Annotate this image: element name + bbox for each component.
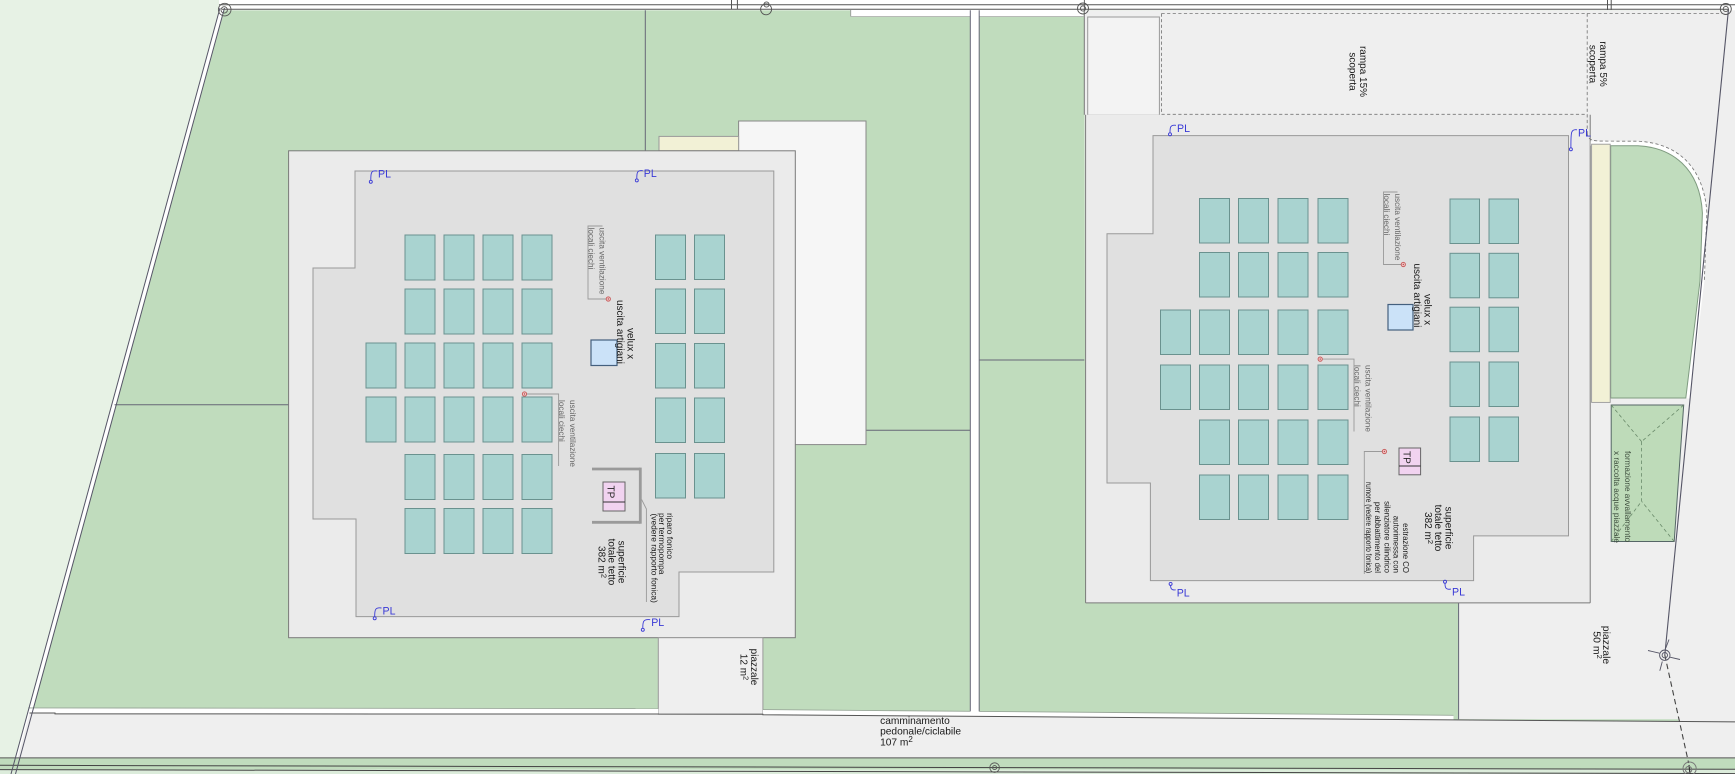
svg-text:PL: PL (378, 169, 391, 181)
svg-text:per abbattimento del: per abbattimento del (1373, 502, 1382, 573)
svg-text:camminamento: camminamento (880, 716, 950, 727)
svg-text:382 m2: 382 m2 (596, 546, 609, 578)
svg-text:PL: PL (651, 617, 664, 629)
svg-text:x raccolta acque piazzale: x raccolta acque piazzale (1612, 451, 1621, 543)
svg-text:PL: PL (644, 168, 657, 180)
svg-text:uscita ventilazione: uscita ventilazione (1364, 365, 1373, 432)
svg-text:scoperta: scoperta (1587, 45, 1598, 84)
svg-text:PL: PL (1177, 587, 1190, 599)
svg-text:locali ciechi: locali ciechi (557, 400, 566, 442)
svg-text:107 m2: 107 m2 (880, 735, 913, 749)
svg-text:rumore (vedere rapporto fonica: rumore (vedere rapporto fonica) (1364, 482, 1373, 573)
svg-text:uscita ventilazione: uscita ventilazione (598, 228, 607, 295)
svg-text:locali ciechi: locali ciechi (1353, 365, 1362, 407)
svg-text:uscita artigiani: uscita artigiani (614, 300, 625, 364)
svg-text:PL: PL (1452, 587, 1465, 599)
svg-text:velux x: velux x (1421, 294, 1432, 325)
svg-text:silenziatore cilindrico: silenziatore cilindrico (1382, 501, 1391, 574)
svg-text:locali ciechi: locali ciechi (587, 228, 596, 270)
svg-text:TP: TP (1401, 451, 1412, 464)
svg-text:uscita ventilazione: uscita ventilazione (1393, 194, 1402, 261)
svg-text:formazione avvallamento: formazione avvallamento (1623, 451, 1632, 542)
svg-text:PL: PL (1578, 127, 1591, 139)
svg-text:PL: PL (1177, 123, 1190, 135)
svg-text:scoperta: scoperta (1347, 52, 1358, 91)
svg-text:uscita ventilazione: uscita ventilazione (568, 400, 577, 467)
svg-text:PL: PL (383, 606, 396, 618)
svg-text:locali ciechi: locali ciechi (1382, 194, 1391, 236)
svg-text:TP: TP (605, 486, 616, 499)
svg-text:estrazione CO: estrazione CO (1401, 523, 1410, 573)
svg-text:pedonale/ciclabile: pedonale/ciclabile (880, 726, 961, 737)
svg-text:382 m2: 382 m2 (1422, 512, 1435, 544)
svg-text:(vedere rapporto fonica): (vedere rapporto fonica) (649, 514, 659, 604)
svg-text:uscita artigiani: uscita artigiani (1411, 264, 1422, 328)
svg-text:autorimessa con: autorimessa con (1392, 516, 1401, 573)
